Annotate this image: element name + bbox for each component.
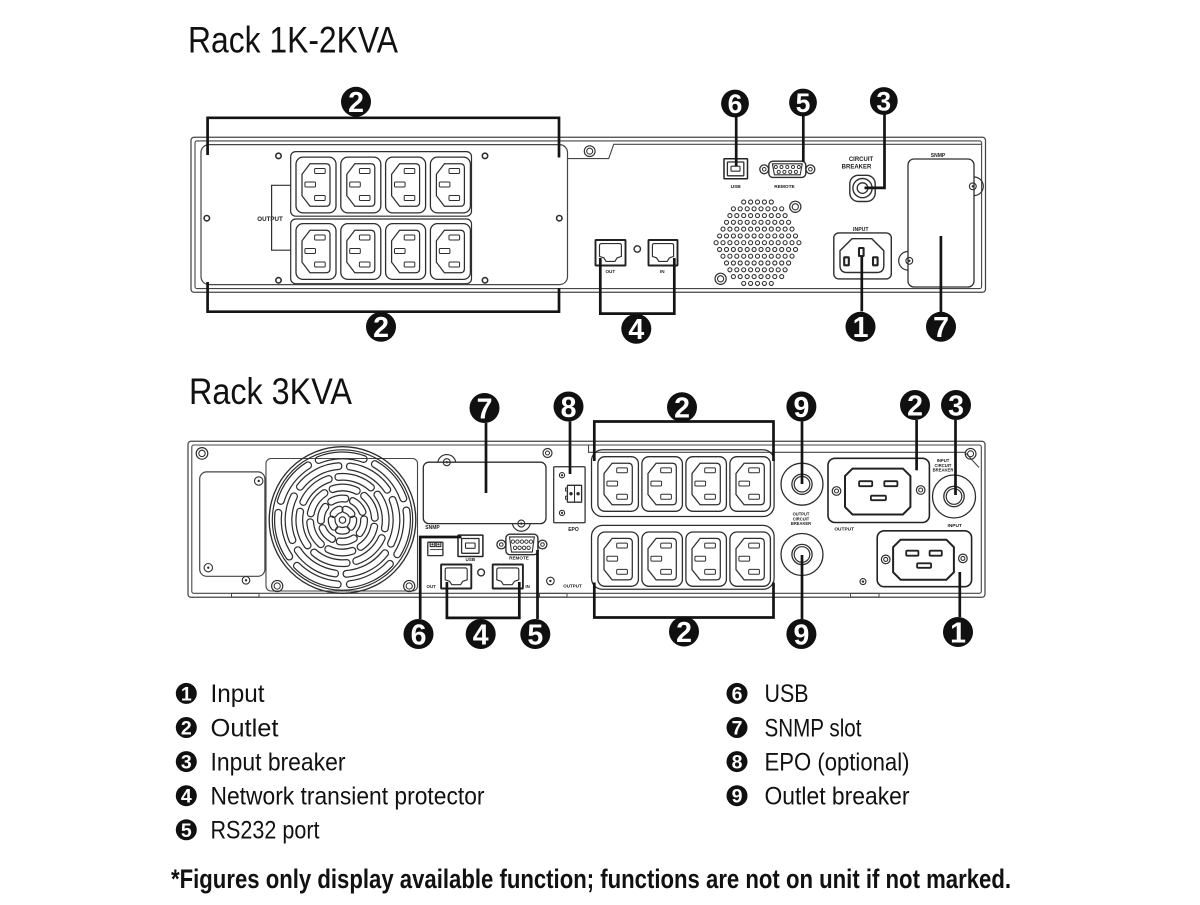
svg-text:BREAKER: BREAKER: [791, 521, 811, 526]
svg-text:2: 2: [348, 87, 364, 119]
svg-text:IN: IN: [525, 584, 529, 589]
svg-text:BREAKER: BREAKER: [842, 165, 872, 171]
svg-text:BREAKER: BREAKER: [933, 468, 954, 473]
svg-text:3: 3: [948, 390, 964, 422]
svg-text:SNMP: SNMP: [931, 153, 946, 159]
svg-text:SNMP: SNMP: [425, 525, 440, 531]
svg-text:6: 6: [728, 89, 743, 119]
svg-text:8: 8: [732, 752, 743, 774]
svg-text:OUTPUT: OUTPUT: [257, 216, 283, 223]
svg-text:7: 7: [933, 312, 949, 344]
svg-text:2: 2: [907, 390, 923, 422]
svg-text:Network transient protector: Network transient protector: [211, 783, 485, 811]
svg-text:9: 9: [793, 619, 809, 651]
svg-text:7: 7: [477, 393, 493, 425]
svg-text:1: 1: [181, 683, 192, 705]
svg-text:2: 2: [181, 718, 192, 740]
svg-text:4: 4: [181, 786, 192, 808]
svg-text:6: 6: [732, 683, 743, 705]
svg-text:2: 2: [674, 393, 690, 425]
svg-text:5: 5: [796, 88, 811, 118]
svg-text:EPO (optional): EPO (optional): [765, 748, 910, 776]
svg-text:3: 3: [181, 752, 192, 774]
svg-text:9: 9: [793, 392, 809, 424]
svg-text:4: 4: [473, 619, 489, 651]
svg-text:OUT: OUT: [427, 584, 437, 589]
svg-text:USB: USB: [765, 680, 809, 708]
svg-text:REMOTE: REMOTE: [509, 555, 529, 560]
svg-text:Outlet breaker: Outlet breaker: [765, 783, 910, 811]
svg-text:INPUT: INPUT: [947, 523, 961, 529]
svg-text:USB: USB: [731, 184, 742, 190]
svg-text:4: 4: [628, 314, 644, 346]
svg-text:Outlet: Outlet: [211, 714, 279, 742]
svg-text:IN: IN: [660, 269, 665, 274]
svg-text:EPO: EPO: [568, 527, 579, 533]
svg-text:2: 2: [373, 312, 389, 344]
svg-text:Input: Input: [211, 680, 265, 708]
svg-text:USB: USB: [466, 557, 476, 562]
svg-text:8: 8: [561, 392, 577, 424]
svg-text:OUT: OUT: [605, 269, 615, 274]
svg-text:7: 7: [732, 718, 743, 740]
svg-text:OUTPUT: OUTPUT: [834, 527, 854, 533]
svg-text:Rack 1K-2KVA: Rack 1K-2KVA: [188, 20, 398, 61]
svg-text:3: 3: [876, 87, 891, 117]
svg-text:Rack 3KVA: Rack 3KVA: [189, 371, 352, 412]
svg-text:REMOTE: REMOTE: [774, 184, 795, 190]
svg-text:CIRCUIT: CIRCUIT: [849, 157, 874, 163]
svg-text:OUTPUT: OUTPUT: [563, 584, 582, 589]
svg-text:9: 9: [732, 786, 743, 808]
svg-text:1: 1: [950, 617, 966, 649]
svg-text:Input breaker: Input breaker: [211, 748, 346, 776]
svg-text:*Figures only display availabl: *Figures only display available function…: [171, 864, 1011, 894]
svg-text:1: 1: [853, 312, 869, 344]
svg-text:5: 5: [181, 820, 192, 842]
svg-text:2: 2: [676, 617, 692, 649]
svg-text:5: 5: [527, 619, 543, 651]
svg-text:SNMP slot: SNMP slot: [765, 714, 862, 742]
svg-text:RS232 port: RS232 port: [211, 817, 320, 845]
svg-text:6: 6: [411, 619, 427, 651]
